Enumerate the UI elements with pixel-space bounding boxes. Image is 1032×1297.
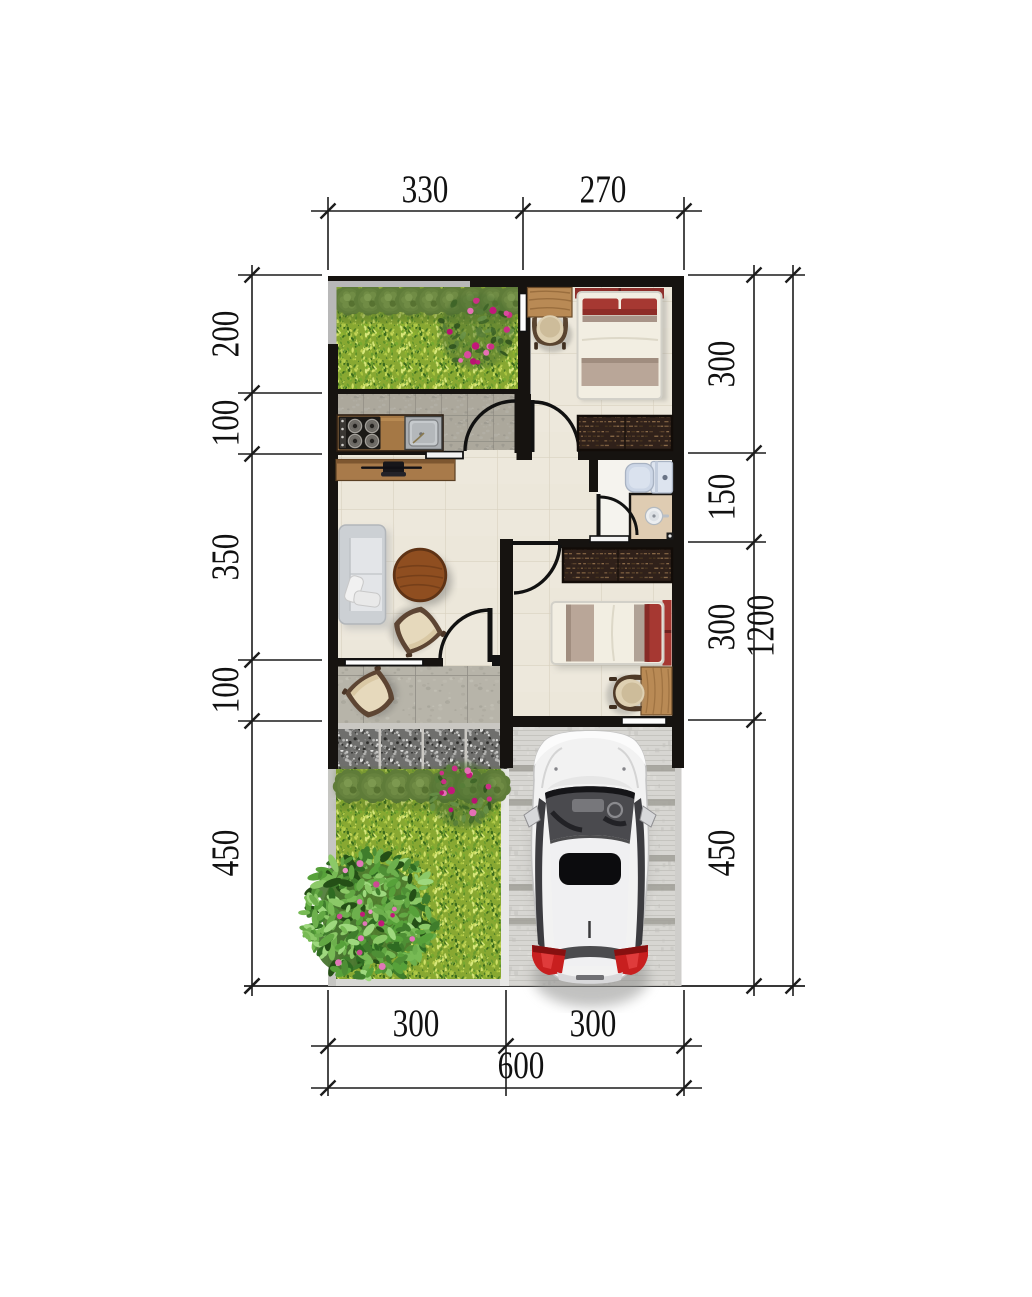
svg-text:100: 100 [204,667,247,714]
svg-text:300: 300 [700,604,743,651]
svg-text:300: 300 [393,1002,440,1045]
svg-text:150: 150 [700,474,743,521]
svg-text:200: 200 [204,311,247,358]
svg-text:270: 270 [580,168,627,211]
svg-text:330: 330 [402,168,449,211]
svg-text:100: 100 [204,400,247,447]
svg-text:300: 300 [570,1002,617,1045]
svg-text:600: 600 [498,1044,545,1087]
svg-text:350: 350 [204,534,247,581]
svg-text:450: 450 [700,830,743,877]
svg-text:450: 450 [204,830,247,877]
svg-text:300: 300 [700,341,743,388]
svg-text:1200: 1200 [739,595,782,657]
